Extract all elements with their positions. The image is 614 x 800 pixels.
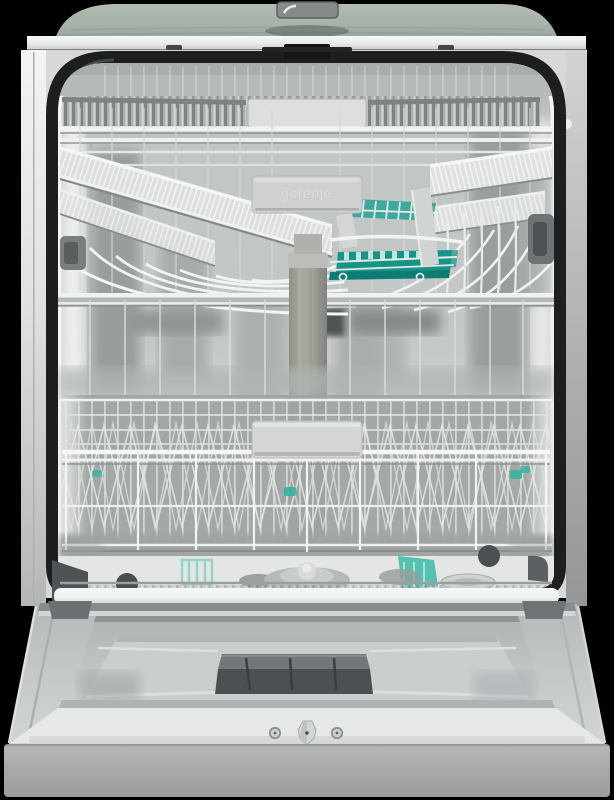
svg-text:gorenje: gorenje <box>281 185 332 201</box>
